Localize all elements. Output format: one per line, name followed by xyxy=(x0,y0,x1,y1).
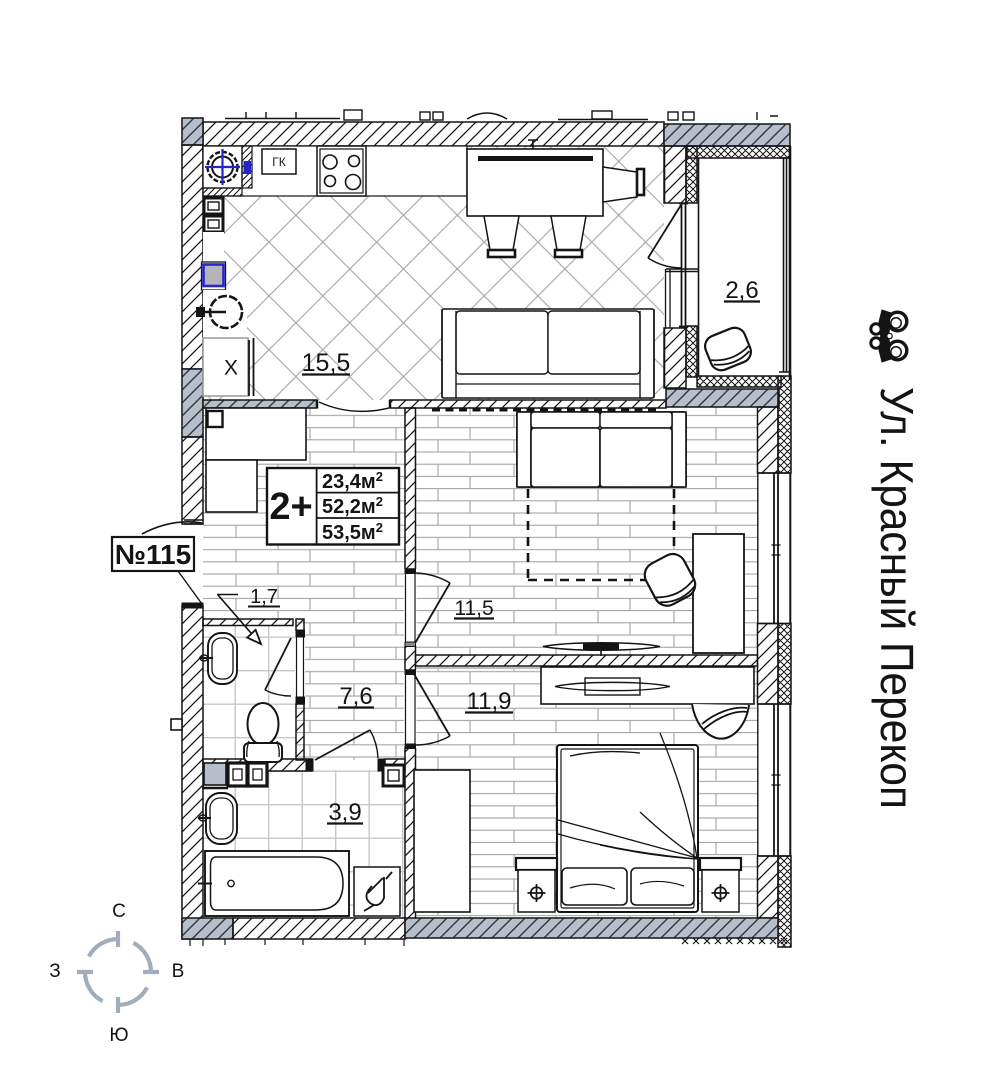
svg-text:53,5м2: 53,5м2 xyxy=(322,520,383,544)
svg-text:3,9: 3,9 xyxy=(328,799,361,826)
svg-text:52,2м2: 52,2м2 xyxy=(322,494,383,518)
svg-text:11,9: 11,9 xyxy=(467,688,512,715)
svg-text:7,6: 7,6 xyxy=(339,683,372,710)
svg-text:В: В xyxy=(172,961,185,982)
svg-text:23,4м2: 23,4м2 xyxy=(322,469,383,493)
svg-text:2+: 2+ xyxy=(269,486,312,528)
svg-text:15,5: 15,5 xyxy=(302,349,351,377)
svg-text:11,5: 11,5 xyxy=(454,597,493,620)
svg-text:№115: №115 xyxy=(115,539,191,570)
svg-text:2,6: 2,6 xyxy=(725,277,758,304)
svg-text:ГК: ГК xyxy=(272,155,286,169)
svg-text:С: С xyxy=(112,901,126,922)
svg-text:Ул. Красный Перекоп: Ул. Красный Перекоп xyxy=(871,387,923,809)
svg-text:X: X xyxy=(224,357,238,380)
svg-text:1,7: 1,7 xyxy=(250,586,278,608)
svg-text:З: З xyxy=(49,961,60,982)
svg-text:Ю: Ю xyxy=(109,1025,128,1046)
